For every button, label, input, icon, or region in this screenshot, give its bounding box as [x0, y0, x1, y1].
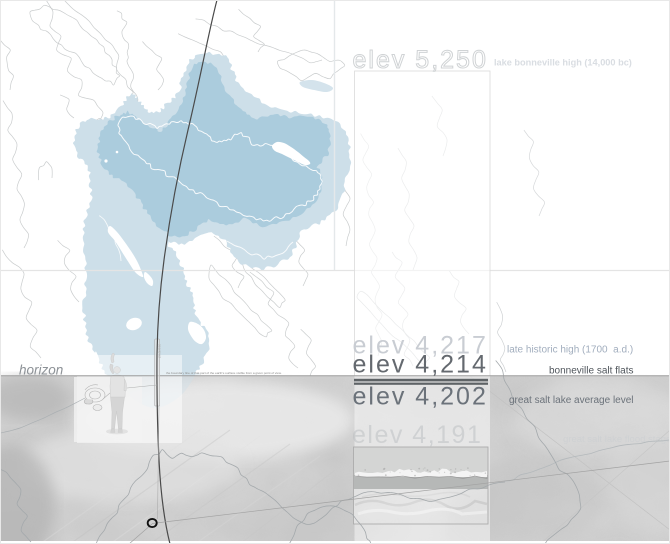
svg-text:bonneville salt flats: bonneville salt flats	[549, 366, 634, 377]
svg-text:great salt lake average level: great salt lake average level	[509, 395, 634, 406]
svg-text:sea level: sea level	[157, 344, 161, 358]
svg-text:horizon: horizon	[19, 363, 63, 378]
svg-text:elev 4,202: elev 4,202	[353, 383, 488, 411]
svg-text:elev 4,214: elev 4,214	[353, 351, 488, 379]
svg-text:elev 5,250: elev 5,250	[353, 46, 488, 74]
svg-text:great salt lake flood stage: great salt lake flood stage	[563, 434, 670, 445]
svg-text:lake bonneville high (14,000 b: lake bonneville high (14,000 bc)	[494, 58, 632, 68]
svg-text:late historic high (1700 a.d.: late historic high (1700 a.d.)	[507, 345, 633, 356]
svg-text:elev 4,191: elev 4,191	[352, 421, 482, 449]
svg-text:the boundary line of that part: the boundary line of that part of the ea…	[166, 371, 282, 375]
